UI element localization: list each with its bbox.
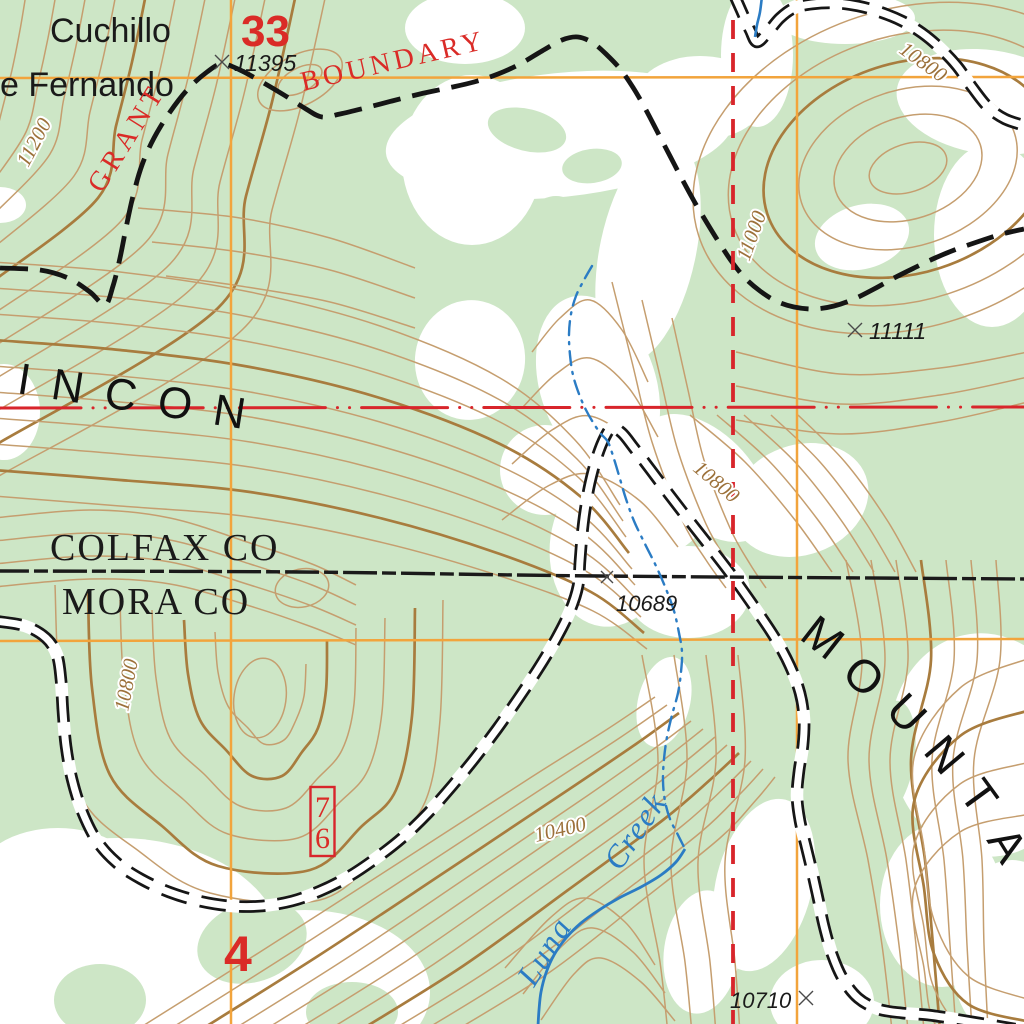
county-label-north: COLFAX CO (50, 527, 280, 569)
spot-elevation-11111: 11111 (869, 318, 926, 344)
section-number-4: 4 (224, 926, 252, 982)
topo-map-canvas: Cuchillo e Fernando 33 11395 GRANT BOUND… (0, 0, 1024, 1024)
spot-elevation-11395: 11395 (234, 50, 296, 76)
topo-map: Cuchillo e Fernando 33 11395 GRANT BOUND… (0, 0, 1024, 1024)
county-label-south: MORA CO (62, 581, 250, 623)
route-marker-digit-bottom: 6 (315, 822, 330, 855)
place-label-line1: Cuchillo (50, 12, 171, 50)
spot-elevation-10710: 10710 (730, 988, 792, 1013)
route-marker-digit-top: 7 (315, 791, 330, 824)
spot-elevation-10689: 10689 (616, 591, 677, 616)
section-number-33: 33 (241, 7, 290, 56)
